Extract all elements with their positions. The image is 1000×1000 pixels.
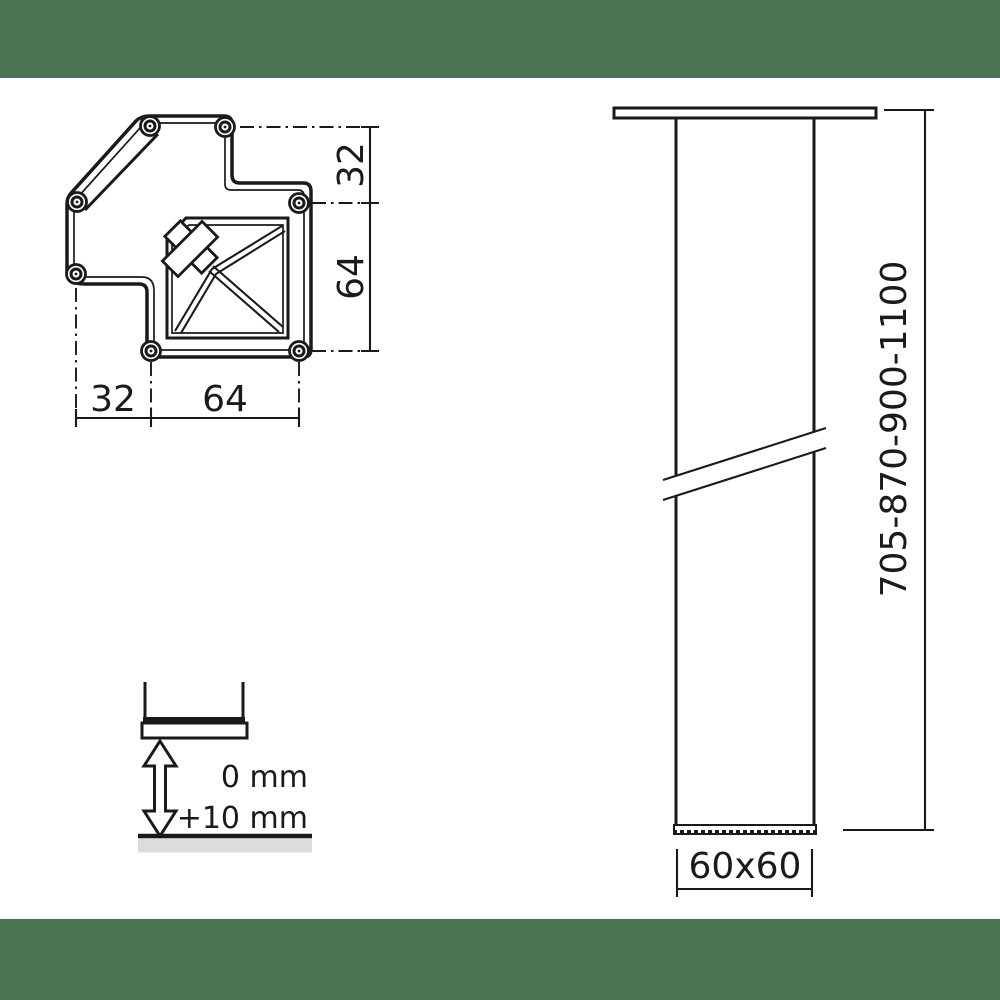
plate-right-dimensions: 32 64	[331, 127, 379, 351]
plate-bottom-dimensions: 32 64	[76, 379, 299, 427]
top-view-mounting-plate: 32 64 32 64	[67, 116, 380, 427]
foot-glide-strip	[674, 825, 816, 834]
technical-drawing-page: 32 64 32 64 705-870-900-1100	[0, 0, 1000, 1000]
break-line	[663, 428, 826, 480]
dim-label-bottom-right: 64	[202, 379, 248, 420]
ground-shadow	[138, 839, 312, 853]
break-line	[663, 448, 826, 500]
screw-hole	[142, 342, 161, 361]
glide-plate	[142, 723, 247, 738]
screw-hole	[216, 118, 235, 137]
screw-hole	[290, 194, 309, 213]
adjustment-detail: 0 mm +10 mm	[138, 682, 312, 853]
cross-section-label: 60x60	[689, 846, 802, 887]
height-dimension: 705-870-900-1100	[843, 110, 934, 830]
screw-hole	[68, 193, 87, 212]
label-0mm: 0 mm	[221, 760, 308, 795]
dim-label-bottom-left: 32	[90, 379, 136, 420]
leg-top-plate	[614, 108, 876, 118]
screw-hole	[290, 342, 309, 361]
screw-hole	[141, 117, 160, 136]
dim-label-right-top: 32	[331, 142, 372, 188]
adjustment-arrow	[144, 741, 176, 836]
height-dim-label: 705-870-900-1100	[874, 261, 915, 598]
cross-section-dimension: 60x60	[677, 846, 812, 897]
technical-drawing-canvas: 32 64 32 64 705-870-900-1100	[0, 0, 1000, 1000]
label-plus10mm: +10 mm	[177, 801, 308, 836]
side-view-leg: 705-870-900-1100 60x60	[614, 108, 934, 897]
center-square-socket	[162, 218, 288, 338]
dim-label-right-bottom: 64	[331, 254, 372, 300]
screw-hole	[67, 265, 86, 284]
bottom-green-bar	[0, 919, 1000, 1000]
top-green-bar	[0, 0, 1000, 78]
